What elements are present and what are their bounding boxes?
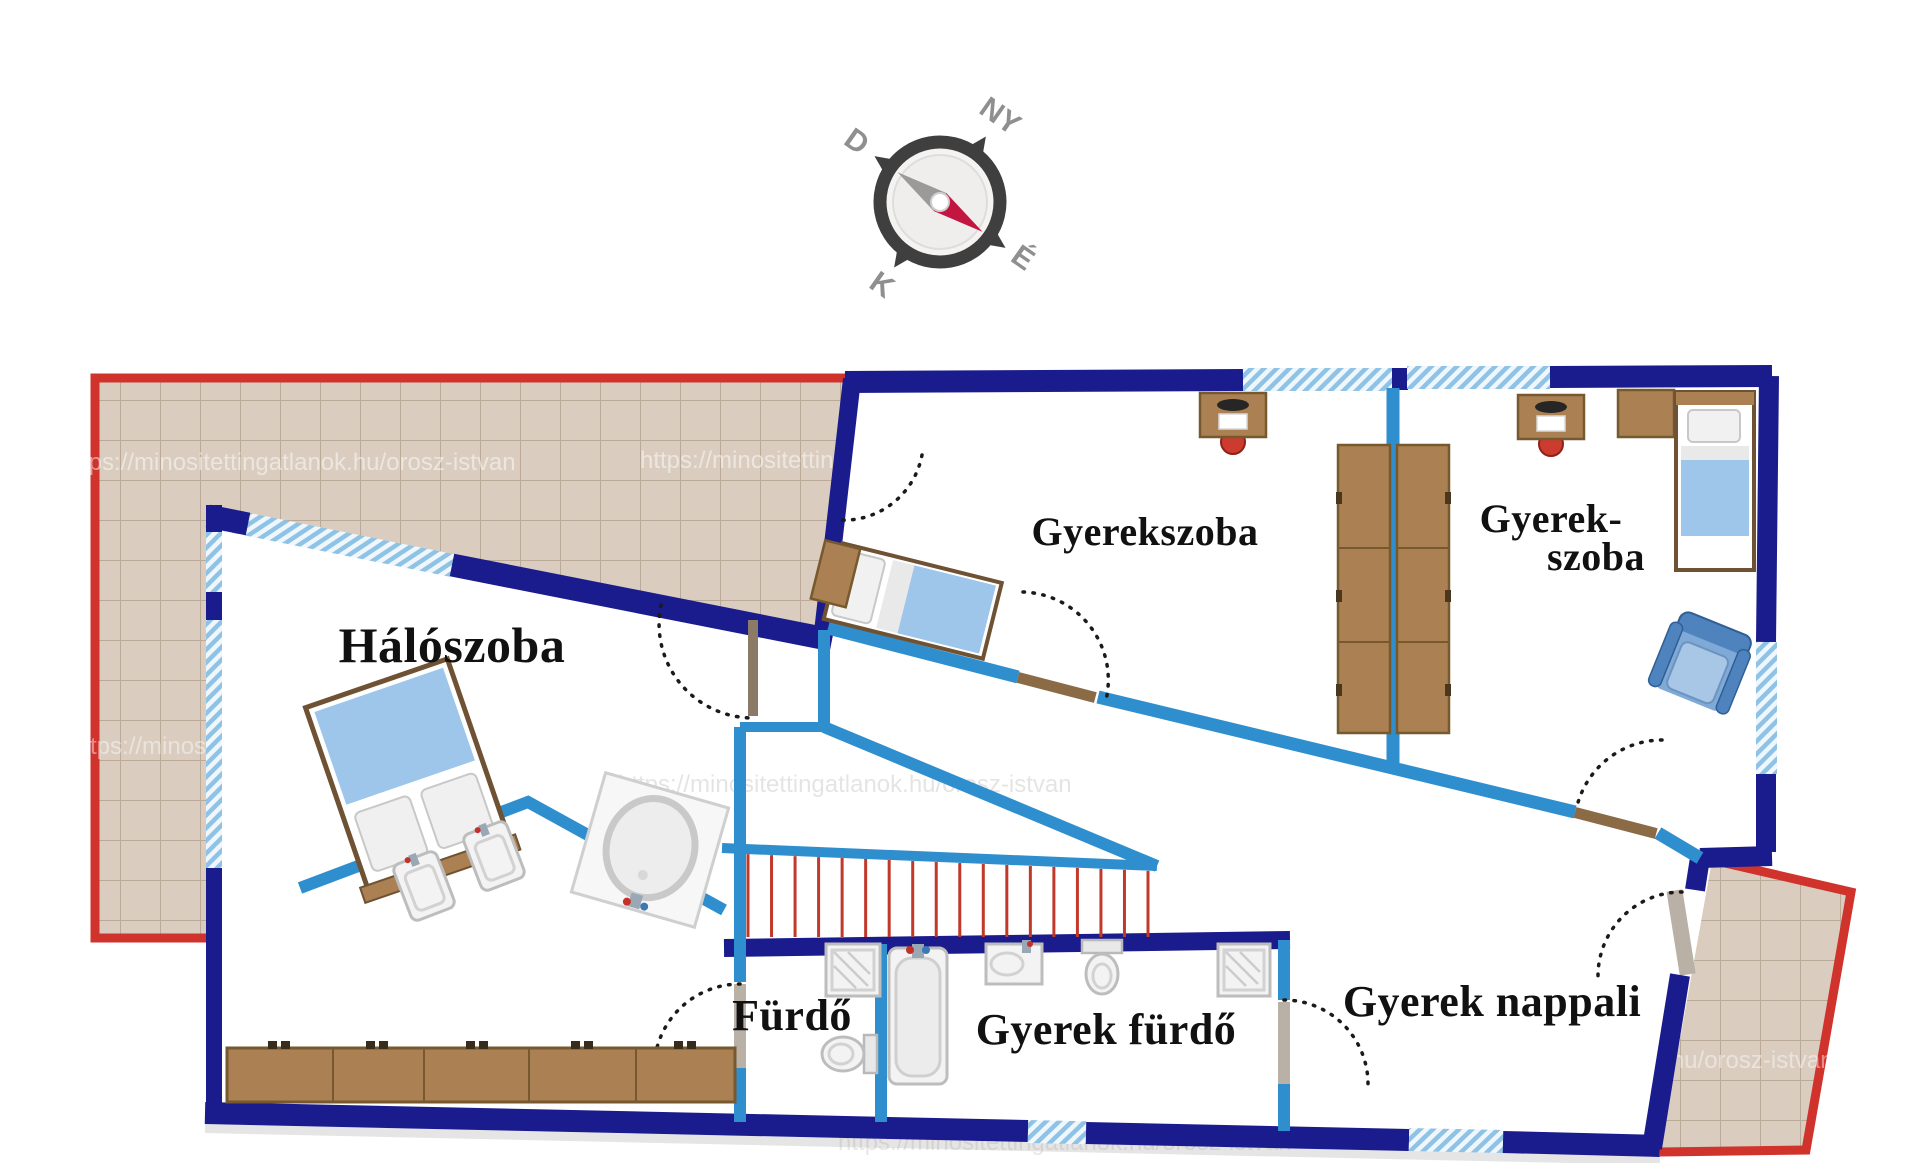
compass-label-east: K bbox=[863, 265, 900, 305]
compass-rose: É D K NY bbox=[779, 38, 1099, 362]
compass-label-north: É bbox=[1005, 238, 1041, 277]
window-hatch bbox=[1407, 366, 1550, 389]
wall-segment bbox=[1700, 856, 1772, 858]
window-hatch bbox=[206, 532, 222, 592]
wardrobe-column-icon bbox=[1397, 445, 1451, 733]
window-hatch bbox=[206, 620, 222, 868]
door-leaf bbox=[748, 620, 758, 716]
watermark-text: https://minositettingatlanok.hu/orosz-is… bbox=[618, 771, 1072, 798]
shower-cabin-icon bbox=[1218, 944, 1270, 996]
wall-segment bbox=[1550, 376, 1772, 377]
armchair-icon bbox=[1647, 607, 1757, 715]
wardrobe-column-icon bbox=[1336, 445, 1390, 733]
floor-plan-svg: https://minositettingatlanok.hu/orosz-is… bbox=[0, 0, 1920, 1163]
door-arc bbox=[1577, 740, 1662, 806]
window-hatch bbox=[1756, 642, 1777, 774]
wall-segment bbox=[1658, 833, 1700, 858]
stair-railing bbox=[722, 848, 1157, 866]
wall-segment bbox=[1503, 1142, 1660, 1146]
door-leaf bbox=[1573, 807, 1657, 839]
window-hatch bbox=[1028, 1120, 1086, 1144]
room-label-kids-living-room: Gyerek nappali bbox=[1343, 977, 1641, 1026]
room-label-bathroom: Fürdő bbox=[732, 991, 852, 1040]
floor-plan-page: https://minositettingatlanok.hu/orosz-is… bbox=[0, 0, 1920, 1163]
wardrobe-row-icon bbox=[227, 1041, 735, 1102]
shower-cabin-icon bbox=[826, 944, 880, 996]
bathtub-icon bbox=[889, 944, 947, 1084]
door-opening bbox=[1667, 889, 1696, 975]
wall-segment bbox=[1086, 1133, 1409, 1140]
wall-segment bbox=[845, 380, 1243, 382]
window-hatch bbox=[1243, 368, 1392, 391]
compass-label-south: D bbox=[838, 122, 875, 161]
door-opening bbox=[1278, 1002, 1290, 1084]
washbasin-icon bbox=[986, 940, 1042, 984]
toilet-icon bbox=[822, 1035, 877, 1073]
nightstand-icon bbox=[1618, 390, 1674, 437]
wall-segment bbox=[1098, 697, 1575, 812]
door-leaf bbox=[1016, 672, 1096, 703]
room-label-kids-bathroom: Gyerek fürdő bbox=[976, 1005, 1237, 1054]
watermark-text: https://minositettingatlanok.hu/orosz-is… bbox=[640, 447, 1094, 474]
room-label-kids-room-2-line2: szoba bbox=[1547, 534, 1645, 579]
toilet-icon bbox=[1082, 940, 1122, 994]
room-label-bedroom: Hálószoba bbox=[339, 617, 566, 673]
window-hatch bbox=[1409, 1128, 1503, 1153]
terrace-bottom-right bbox=[1660, 860, 1851, 1152]
desk-with-chair-icon bbox=[1518, 395, 1584, 456]
room-label-kids-room-1: Gyerekszoba bbox=[1032, 509, 1259, 554]
compass-label-west: NY bbox=[973, 91, 1026, 142]
watermark-text: https://minositettingatlanok.hu/orosz-is… bbox=[62, 449, 516, 476]
single-bed-icon bbox=[1676, 392, 1754, 570]
terrace-tiles bbox=[1660, 860, 1851, 1152]
desk-with-chair-icon bbox=[1200, 393, 1266, 454]
watermark-text: https://minositettingatlanok.hu/orosz-is… bbox=[1380, 1047, 1834, 1074]
wall-segment bbox=[1766, 376, 1769, 642]
